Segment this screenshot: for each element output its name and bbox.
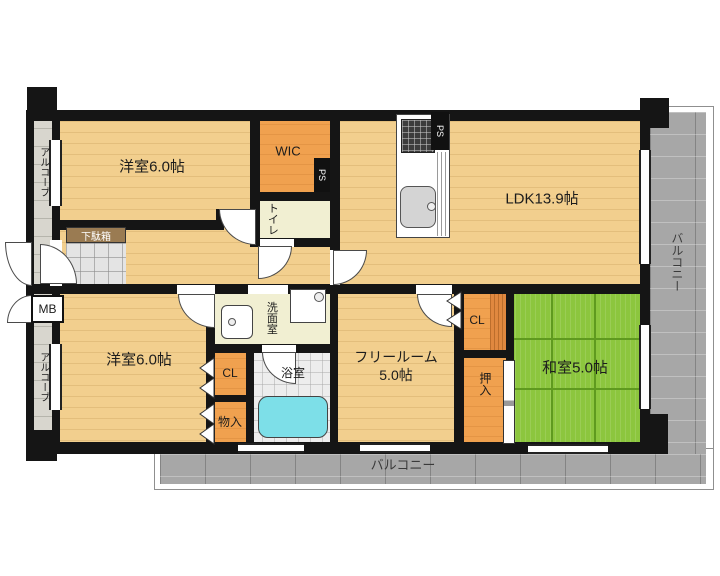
balcony-bottom-label: バルコニー	[371, 459, 436, 474]
folding-door-icon	[445, 291, 462, 331]
basin-drain-icon	[228, 318, 236, 326]
toilet-label: トイレ	[266, 203, 279, 236]
freeroom-label-line1: フリールーム	[354, 349, 438, 365]
shoe-cabinet: 下駄箱	[66, 227, 126, 243]
pipe-space-wic: PS	[314, 158, 330, 192]
wic-label: WIC	[275, 145, 300, 160]
senmen-label: 洗面室	[265, 302, 278, 335]
window	[49, 344, 62, 410]
wall	[330, 110, 340, 250]
floor-plan: PS PS 下駄箱 MB 洋室6.0帖 WIC トイレ LDK13.9帖 アルコ…	[0, 0, 720, 576]
door-opening	[177, 285, 215, 294]
wall	[330, 284, 338, 454]
wall	[250, 192, 338, 201]
entrance-door-arc-outer	[5, 242, 32, 286]
alcove-label-bottom: アルコーブ	[37, 352, 49, 402]
window	[639, 150, 651, 264]
pillar	[27, 87, 57, 111]
ps-label: PS	[435, 125, 445, 137]
wall	[246, 350, 254, 445]
ps-label: PS	[317, 169, 327, 181]
wall	[462, 350, 508, 358]
closet-cl-b-wood	[490, 294, 506, 350]
fusuma-sliding-door	[503, 360, 515, 444]
folding-door-icon	[198, 357, 215, 399]
meter-box: MB	[31, 295, 64, 323]
room1-label: 洋室6.0帖	[119, 158, 185, 175]
washitsu-label: 和室5.0帖	[542, 359, 608, 376]
bathtub-icon	[258, 396, 328, 438]
folding-door-icon	[198, 403, 215, 445]
mb-label: MB	[39, 302, 57, 316]
wash-basin-icon	[221, 305, 253, 339]
pillar	[640, 98, 669, 128]
bath-label: 浴室	[281, 367, 305, 381]
cl-a-label: CL	[222, 367, 237, 381]
pipe-space-kitchen: PS	[431, 112, 449, 150]
getabako-label: 下駄箱	[81, 228, 111, 243]
closet-oshiire	[460, 356, 508, 444]
wall	[336, 284, 648, 294]
pillar	[640, 414, 668, 454]
balcony-right-label: バルコニー	[669, 232, 683, 292]
window	[639, 325, 651, 409]
mb-door-arc	[7, 295, 32, 323]
ldk-label: LDK13.9帖	[505, 190, 578, 207]
room2-label: 洋室6.0帖	[106, 351, 172, 368]
counter-edge	[437, 152, 449, 236]
faucet-icon	[427, 202, 436, 211]
monoire-label: 物入	[218, 416, 242, 430]
door-opening	[248, 285, 288, 294]
pillar	[26, 430, 57, 461]
window	[238, 443, 304, 453]
alcove-label-top: アルコーブ	[37, 147, 49, 197]
window	[528, 444, 608, 454]
cl-b-label: CL	[469, 314, 484, 328]
washer-drain-icon	[314, 292, 324, 302]
window	[360, 443, 430, 453]
window	[49, 140, 62, 206]
stove-icon	[401, 119, 435, 153]
freeroom-label-line2: 5.0帖	[379, 367, 412, 383]
oshiire-label: 押入	[477, 372, 491, 396]
